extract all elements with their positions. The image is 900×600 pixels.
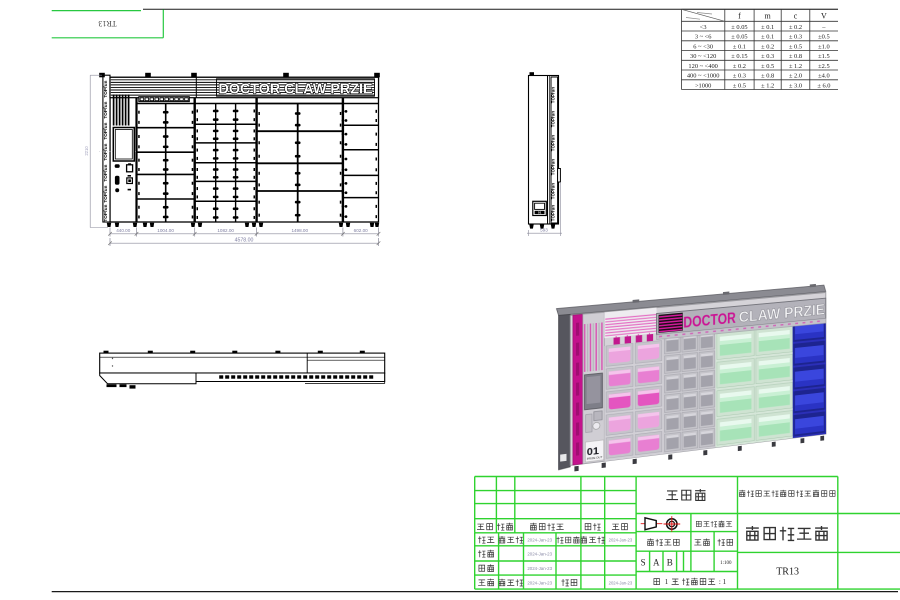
svg-text:DOCTOR CLAW PRZIE: DOCTOR CLAW PRZIE (219, 81, 373, 97)
svg-text:m: m (765, 12, 772, 21)
svg-text:4578.00: 4578.00 (235, 237, 254, 243)
svg-text:± 0.8: ± 0.8 (761, 73, 774, 80)
svg-text:TR13: TR13 (776, 567, 799, 578)
svg-text:2024-Jan-23: 2024-Jan-23 (609, 580, 633, 585)
svg-text:± 0.15: ± 0.15 (731, 53, 747, 60)
svg-text:S: S (641, 558, 646, 568)
svg-text:TOPfun: TOPfun (103, 164, 108, 181)
svg-text:6 ~ <30: 6 ~ <30 (693, 43, 713, 50)
svg-text:± 0.5: ± 0.5 (789, 43, 802, 50)
svg-text:–: – (821, 24, 826, 31)
svg-text:TOPfun: TOPfun (103, 204, 108, 221)
svg-text:1082.00: 1082.00 (217, 228, 234, 233)
svg-text:± 0.8: ± 0.8 (789, 53, 802, 60)
svg-text:>1000: >1000 (695, 82, 711, 89)
svg-text:TOPfun: TOPfun (103, 80, 108, 97)
svg-text:TOPfun: TOPfun (551, 135, 556, 152)
svg-text:V: V (821, 12, 827, 21)
svg-text:A: A (653, 558, 660, 568)
svg-text:2024-Jan-23: 2024-Jan-23 (527, 552, 552, 557)
svg-text:2024-Jan-23: 2024-Jan-23 (609, 538, 633, 543)
svg-text:<3: <3 (700, 24, 707, 31)
svg-text:1: 1 (665, 578, 669, 586)
svg-text:440.00: 440.00 (116, 228, 130, 233)
svg-text:TOPfun: TOPfun (103, 143, 108, 160)
svg-text:± 1.2: ± 1.2 (789, 63, 802, 70)
svg-text:±1.5: ±1.5 (818, 53, 830, 60)
svg-text:TOPfun: TOPfun (551, 183, 556, 200)
svg-text:± 0.2: ± 0.2 (789, 24, 802, 31)
svg-text:±2.5: ±2.5 (818, 63, 830, 70)
svg-text:120 ~ <400: 120 ~ <400 (688, 63, 717, 70)
svg-text:± 6.0: ± 6.0 (817, 82, 830, 89)
svg-text:± 1.2: ± 1.2 (761, 82, 774, 89)
svg-text:: 1: : 1 (719, 578, 727, 586)
svg-text:f: f (738, 12, 741, 21)
svg-text:2024-Jan-23: 2024-Jan-23 (527, 538, 552, 543)
svg-text:± 0.5: ± 0.5 (733, 82, 746, 89)
svg-text:30 ~ <120: 30 ~ <120 (690, 53, 716, 60)
svg-text:01: 01 (538, 211, 542, 215)
svg-text:c: c (794, 12, 798, 21)
svg-text:± 0.05: ± 0.05 (731, 24, 747, 31)
svg-text:TOPfun: TOPfun (551, 159, 556, 176)
svg-text:± 0.2: ± 0.2 (733, 63, 746, 70)
svg-text:TOPfun: TOPfun (103, 101, 108, 118)
svg-text:± 0.3: ± 0.3 (789, 34, 802, 41)
svg-text:400 ~ <1000: 400 ~ <1000 (687, 73, 720, 80)
svg-text:±0.5: ±0.5 (818, 34, 830, 41)
svg-text:± 0.2: ± 0.2 (761, 43, 774, 50)
svg-text:± 0.05: ± 0.05 (731, 34, 747, 41)
svg-text:± 0.3: ± 0.3 (761, 53, 774, 60)
svg-text:±4.0: ±4.0 (818, 73, 830, 80)
svg-text:1:100: 1:100 (720, 561, 732, 566)
svg-text:593: 593 (540, 227, 548, 232)
svg-text:± 0.1: ± 0.1 (733, 43, 746, 50)
svg-text:TOPfun: TOPfun (551, 205, 556, 222)
svg-text:± 3.0: ± 3.0 (789, 82, 802, 89)
svg-text:± 0.1: ± 0.1 (761, 34, 774, 41)
svg-text:602.00: 602.00 (354, 228, 368, 233)
svg-text:2024-Jan-23: 2024-Jan-23 (527, 566, 552, 571)
svg-text:2024-Jan-23: 2024-Jan-23 (527, 580, 552, 585)
svg-text:± 0.3: ± 0.3 (733, 73, 746, 80)
svg-text:± 0.5: ± 0.5 (761, 63, 774, 70)
svg-text:TR13: TR13 (98, 19, 116, 28)
svg-text:1498.00: 1498.00 (291, 228, 308, 233)
svg-text:3 ~ <6: 3 ~ <6 (695, 34, 712, 41)
svg-text:TOPfun: TOPfun (103, 122, 108, 139)
svg-text:TOPfun: TOPfun (551, 87, 556, 104)
svg-text:1004.00: 1004.00 (157, 228, 174, 233)
svg-text:B: B (667, 558, 673, 568)
svg-text:2210: 2210 (84, 146, 89, 156)
svg-text:± 2.0: ± 2.0 (789, 73, 802, 80)
svg-text:TOPfun: TOPfun (103, 185, 108, 202)
svg-text:TOPfun: TOPfun (551, 111, 556, 128)
svg-text:±1.0: ±1.0 (818, 43, 830, 50)
svg-text:± 0.1: ± 0.1 (761, 24, 774, 31)
